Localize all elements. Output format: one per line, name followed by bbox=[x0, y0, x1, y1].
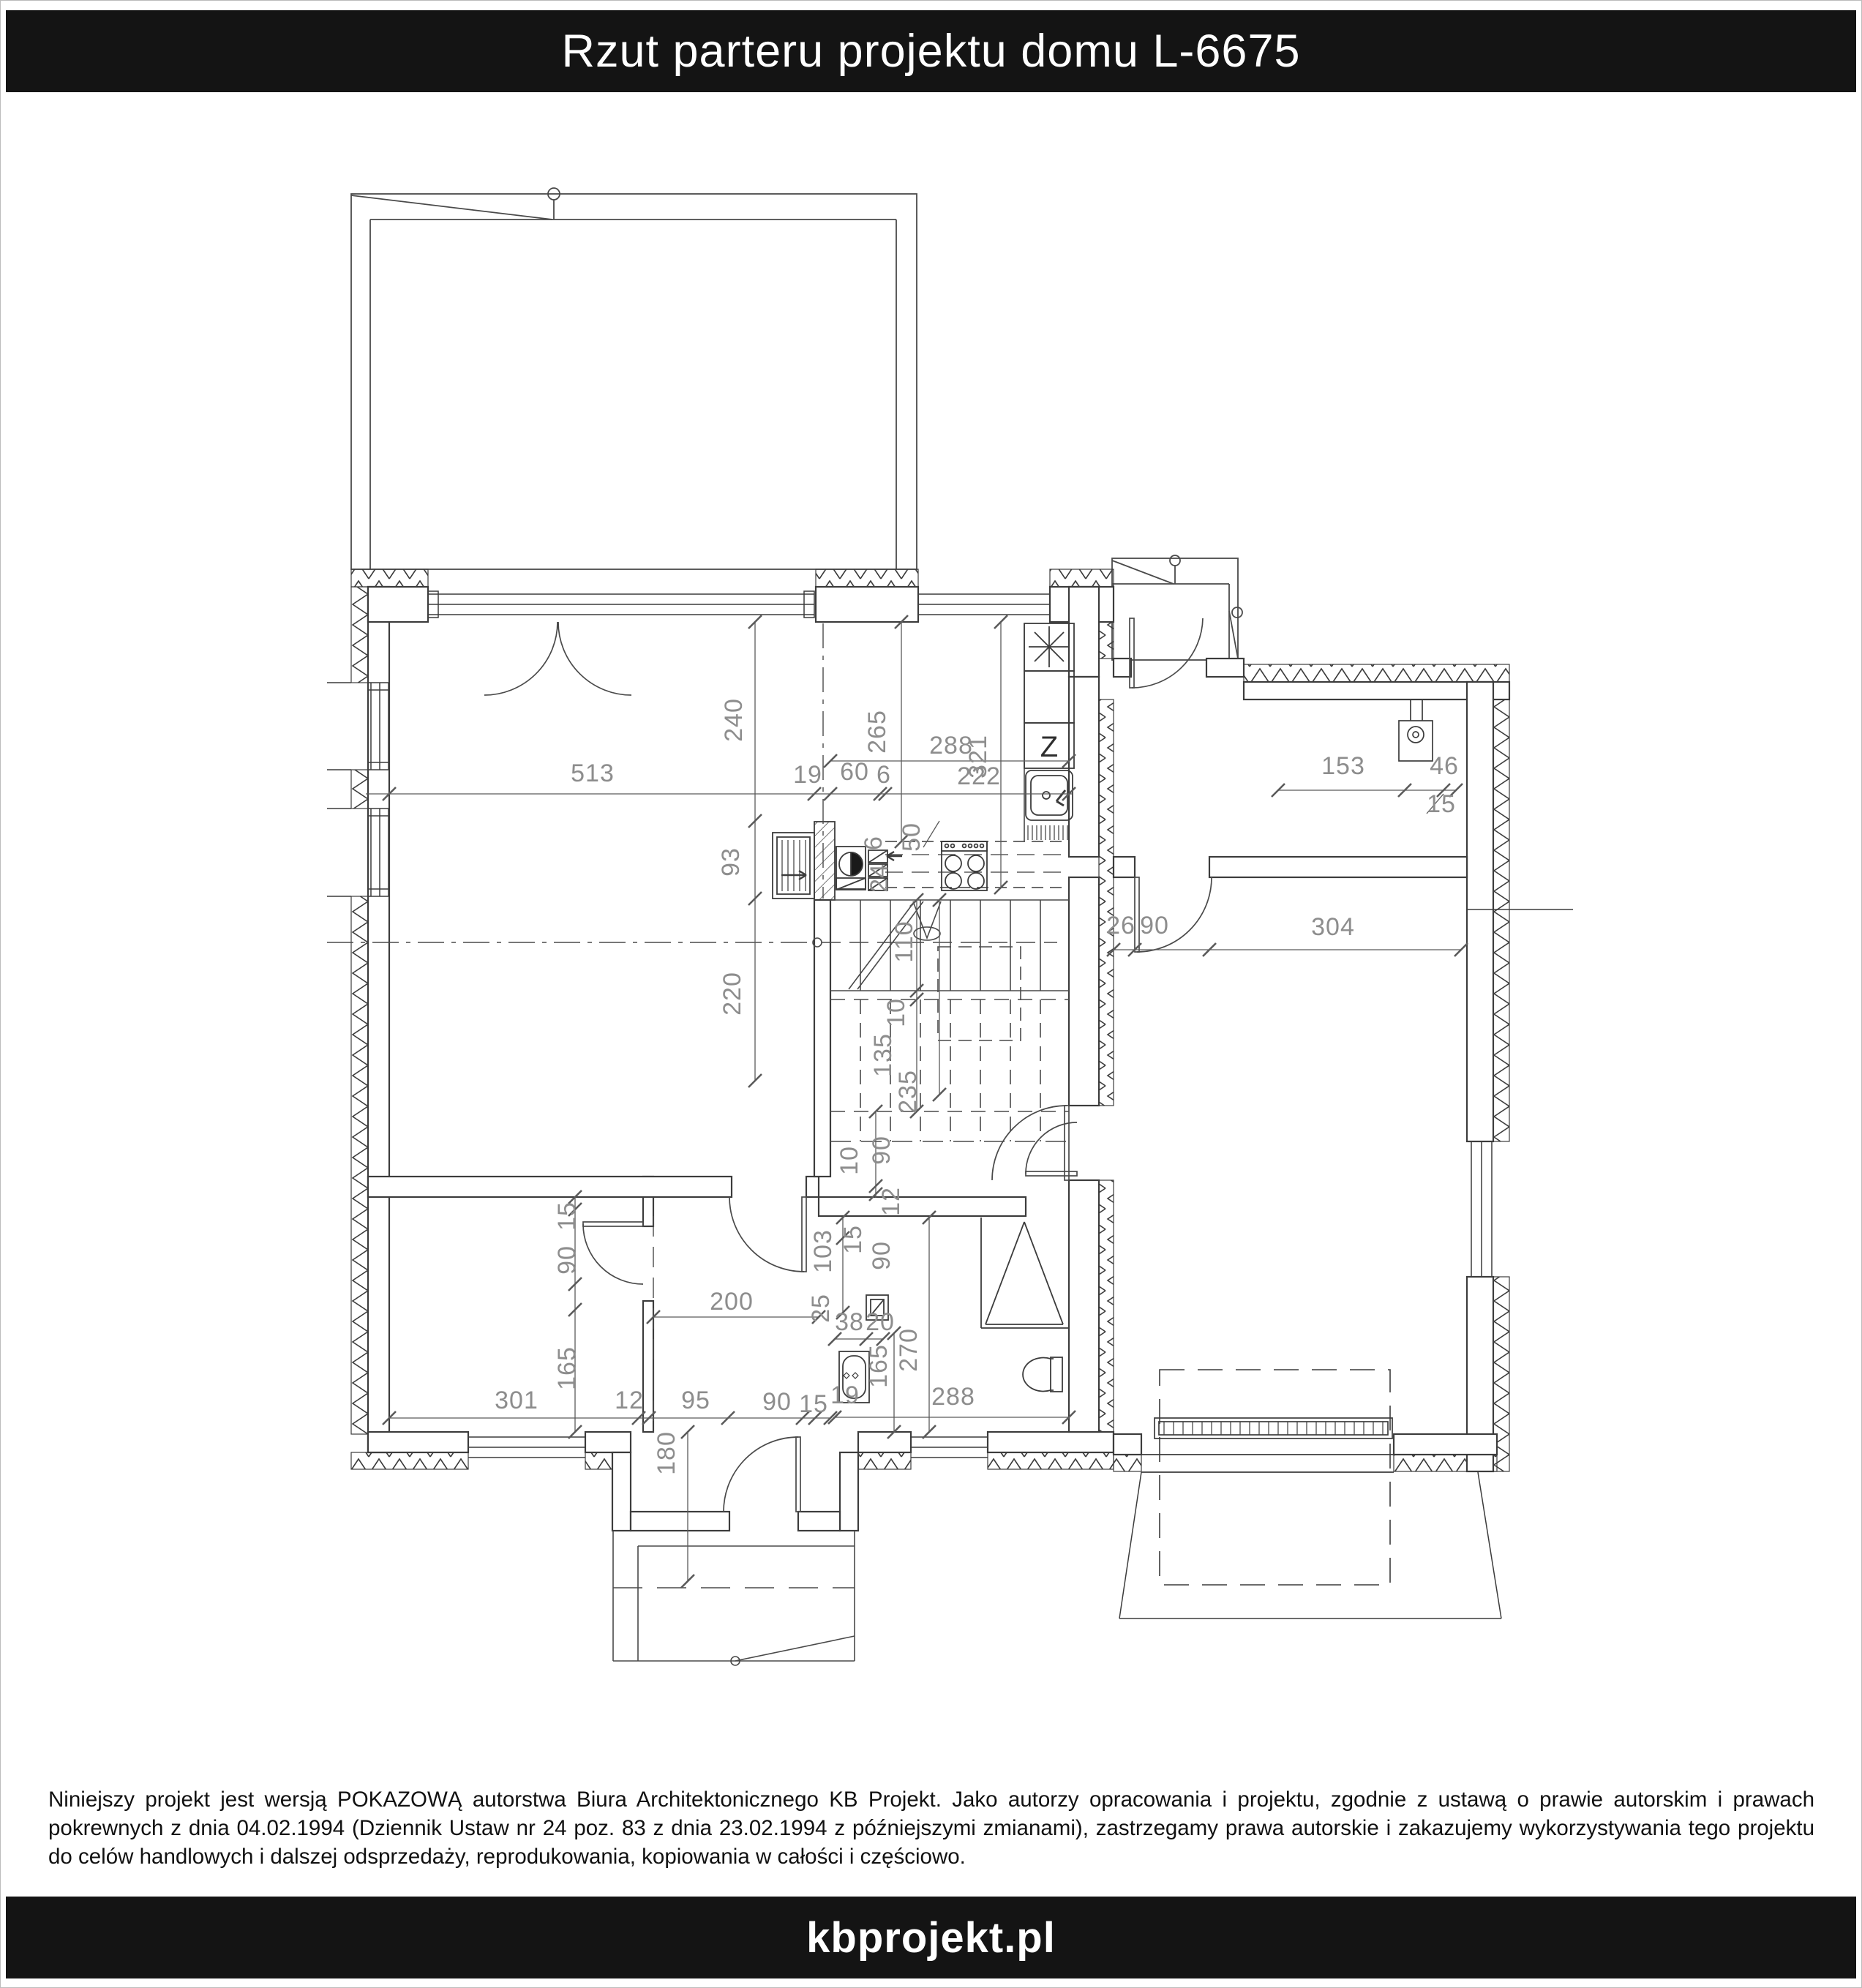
dimension-label: 6 bbox=[876, 761, 891, 789]
living-door-arc bbox=[729, 1197, 804, 1272]
dimension-label: 301 bbox=[495, 1387, 538, 1414]
dimension-label: 200 bbox=[710, 1288, 754, 1316]
dimension-label: 6 bbox=[860, 836, 887, 850]
dimension-label: 180 bbox=[653, 1431, 680, 1475]
vestibule-door-leaf bbox=[796, 1437, 800, 1512]
dimension-label: 222 bbox=[957, 762, 1001, 790]
vent-arrow-icon bbox=[887, 852, 902, 860]
dimension-label: 165 bbox=[553, 1346, 581, 1390]
dimension-label: 135 bbox=[869, 1033, 897, 1077]
dimension-label: 90 bbox=[868, 1241, 896, 1270]
dimension-label: 90 bbox=[553, 1245, 581, 1275]
hood-asterisk-icon bbox=[1029, 626, 1070, 667]
dimension-label: 15 bbox=[839, 1225, 867, 1254]
dimension-label: 26 bbox=[1106, 912, 1135, 939]
dimension-label: 46 bbox=[1430, 752, 1459, 780]
copyright-disclaimer: Niniejszy projekt jest wersją POKAZOWĄ a… bbox=[48, 1785, 1814, 1871]
chimney-hatch bbox=[814, 822, 835, 900]
dimension-label: 103 bbox=[809, 1229, 837, 1273]
dimension-label: 15 bbox=[553, 1201, 581, 1231]
dimension-label: 10 bbox=[836, 1146, 863, 1175]
study-door-arc bbox=[583, 1224, 643, 1284]
entry-porch bbox=[613, 1531, 855, 1665]
floor-plan-drawing: 5131960628832122224026593506242201101013… bbox=[0, 0, 1862, 1988]
living-door-leaf bbox=[802, 1197, 806, 1272]
shower-edge bbox=[981, 1218, 1068, 1328]
dimension-label: 165 bbox=[865, 1344, 893, 1388]
study-door-leaf bbox=[583, 1222, 643, 1226]
front-door-arc bbox=[1132, 618, 1203, 688]
hall-garage-door-leaf bbox=[1065, 1106, 1069, 1180]
dimension-label: 60 bbox=[840, 758, 869, 786]
dimension-label: 235 bbox=[894, 1070, 922, 1114]
page-title: Rzut parteru projektu domu L-6675 bbox=[561, 25, 1300, 78]
dimension-label: 304 bbox=[1311, 913, 1355, 941]
french-door-right-arc bbox=[558, 622, 631, 695]
shower-triangle bbox=[986, 1222, 1063, 1324]
dimension-label: 15 bbox=[1427, 790, 1456, 818]
hall-garage-door-arc bbox=[992, 1106, 1067, 1180]
driveway bbox=[1119, 1472, 1501, 1618]
dimension-label: 38 bbox=[835, 1308, 864, 1336]
fixture-label: Z bbox=[1040, 731, 1058, 763]
toilet bbox=[1023, 1357, 1062, 1392]
dimension-label: 240 bbox=[720, 698, 748, 742]
dimension-label: 19 bbox=[793, 761, 822, 789]
dimension-label: 95 bbox=[681, 1387, 710, 1414]
garage-door-swing-dashed bbox=[1160, 1370, 1390, 1585]
dimension-label: 93 bbox=[717, 847, 745, 877]
dimension-label: 25 bbox=[807, 1294, 835, 1323]
dimension-label: 10 bbox=[882, 998, 910, 1027]
dimension-label: 90 bbox=[868, 1136, 896, 1165]
dimension-label: 110 bbox=[890, 920, 918, 962]
dimension-label: 19 bbox=[830, 1381, 860, 1409]
dimension-labels: 5131960628832122224026593506242201101013… bbox=[495, 698, 1459, 1475]
stairs bbox=[813, 900, 1069, 1141]
page: 5131960628832122224026593506242201101013… bbox=[0, 0, 1862, 1988]
kitchen-cabinet bbox=[1024, 671, 1074, 723]
vestibule-door-arc bbox=[724, 1437, 798, 1512]
dimension-label: 265 bbox=[863, 710, 891, 754]
dimension-label: 24 bbox=[866, 863, 893, 893]
stove bbox=[942, 841, 987, 890]
footer-bar: kbprojekt.pl bbox=[6, 1897, 1856, 1978]
dimension-label: 20 bbox=[866, 1308, 895, 1336]
brand-name: kbprojekt.pl bbox=[806, 1913, 1056, 1962]
dimension-label: 288 bbox=[931, 1383, 975, 1411]
garage-door-opening bbox=[1141, 1455, 1394, 1472]
dimension-label: 12 bbox=[877, 1187, 905, 1216]
dimension-label: 15 bbox=[799, 1390, 828, 1418]
terrace bbox=[351, 188, 917, 569]
dimension-label: 90 bbox=[762, 1388, 792, 1416]
entrance-porch-roof bbox=[1112, 555, 1242, 660]
dimension-label: 50 bbox=[898, 822, 926, 852]
drainboard bbox=[1028, 825, 1067, 840]
dimension-label: 220 bbox=[718, 972, 746, 1016]
dimension-label: 12 bbox=[615, 1387, 644, 1414]
french-door-left-arc bbox=[484, 622, 558, 695]
title-bar: Rzut parteru projektu domu L-6675 bbox=[6, 10, 1856, 92]
dimension-label: 513 bbox=[571, 759, 615, 787]
dimension-label: 153 bbox=[1321, 752, 1365, 780]
dimension-label: 90 bbox=[1140, 912, 1169, 939]
floor-plan-area: 5131960628832122224026593506242201101013… bbox=[0, 0, 1862, 1988]
dimension-label: 270 bbox=[895, 1328, 923, 1372]
